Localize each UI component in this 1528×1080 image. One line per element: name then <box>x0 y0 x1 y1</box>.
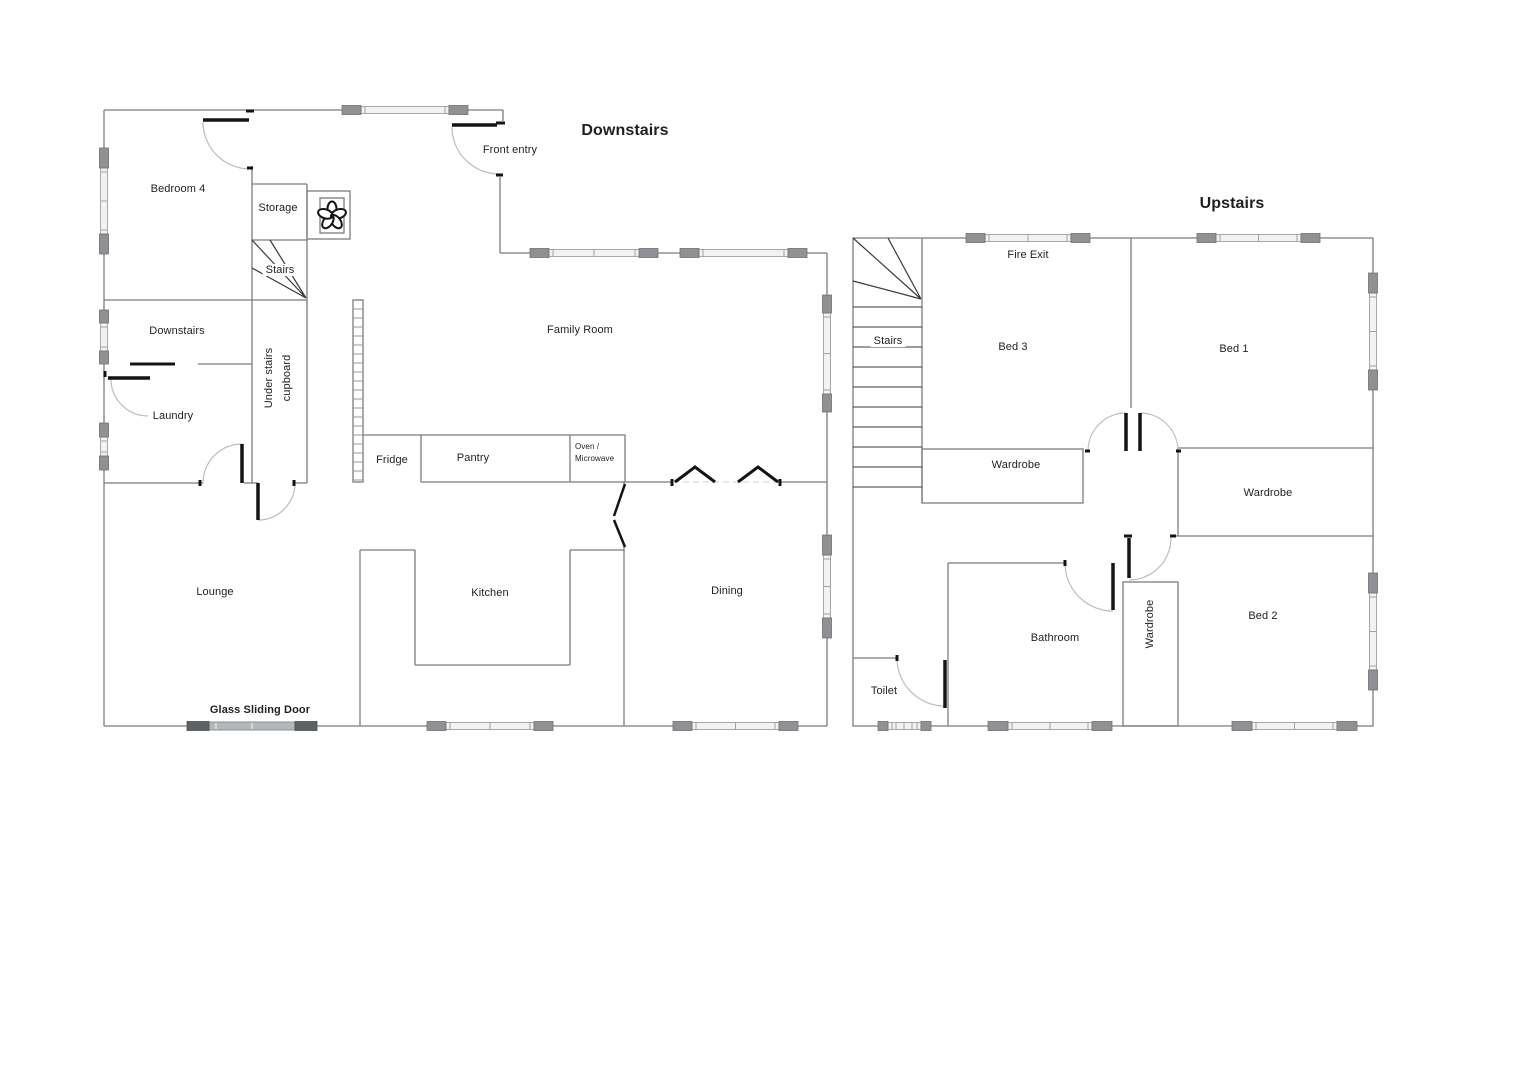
window-icon <box>1197 234 1320 243</box>
sliding-door-icon <box>187 722 317 731</box>
window-icon <box>1232 722 1357 731</box>
room-label-storage: Storage <box>258 202 297 214</box>
upstairs-walls <box>853 238 1373 726</box>
room-label-laundry: Laundry <box>153 410 193 422</box>
door-leaves <box>105 111 1181 708</box>
room-label-bed3: Bed 3 <box>998 341 1027 353</box>
windows-layer <box>100 106 1378 731</box>
window-icon <box>823 535 832 638</box>
bed2-door-arc <box>1129 538 1171 580</box>
upstairs-outer-wall <box>853 238 1373 726</box>
under-stairs-line1: Under stairs <box>263 348 275 409</box>
window-icon <box>988 722 1112 731</box>
floor-plan-page: Downstairs Upstairs Bedroom 4 Storage St… <box>0 0 1528 1080</box>
kitchen-bench <box>360 482 624 726</box>
window-icon <box>966 234 1090 243</box>
room-label-oven-microwave: Oven / Microwave <box>575 441 614 465</box>
label-glass-sliding-door: Glass Sliding Door <box>210 704 310 716</box>
bifold-doors <box>675 467 778 482</box>
label-fire-exit: Fire Exit <box>1007 249 1048 261</box>
ceiling-fan-icon <box>317 202 347 231</box>
downstairs-walls <box>104 110 827 726</box>
room-label-stairs-downstairs: Stairs <box>263 264 298 276</box>
upstairs-stair-treads <box>853 307 922 487</box>
bed1-door-arc <box>1140 413 1178 451</box>
room-label-wardrobe-bed3: Wardrobe <box>992 459 1041 471</box>
bathroom-door-arc <box>1065 563 1113 611</box>
bed3-door-arc <box>1088 413 1126 451</box>
toilet-door-arc <box>897 658 945 706</box>
room-label-under-stairs-cupboard: Under stairs cupboard <box>260 348 296 409</box>
cupboard-door-arc <box>258 483 295 520</box>
window-icon <box>100 423 109 470</box>
downstairs-outer-wall <box>104 110 827 726</box>
room-label-bathroom: Bathroom <box>1031 632 1080 644</box>
room-label-bed1: Bed 1 <box>1219 343 1248 355</box>
room-label-bed2: Bed 2 <box>1248 610 1277 622</box>
room-label-dining: Dining <box>711 585 743 597</box>
wall-ladder-rungs <box>353 309 363 480</box>
under-stairs-line2: cupboard <box>281 355 293 402</box>
upstairs-title: Upstairs <box>1200 195 1265 213</box>
room-label-downstairs-hall: Downstairs <box>149 325 204 337</box>
window-icon <box>342 106 468 115</box>
laundry-door-arc <box>203 444 242 483</box>
upstairs-stair-winders <box>853 238 921 299</box>
room-label-wardrobe-bed1: Wardrobe <box>1244 487 1293 499</box>
room-label-fridge: Fridge <box>376 454 408 466</box>
window-icon <box>878 722 931 731</box>
downstairs-title: Downstairs <box>581 122 668 140</box>
oven-line1: Oven / <box>575 442 599 451</box>
window-icon <box>680 249 807 258</box>
room-label-front-entry: Front entry <box>483 144 537 156</box>
room-label-wardrobe-bed2: Wardrobe <box>1141 600 1159 649</box>
room-label-pantry: Pantry <box>457 452 489 464</box>
room-label-bedroom4: Bedroom 4 <box>151 183 206 195</box>
bedroom4-door-arc <box>203 122 250 169</box>
hall-door-arc <box>111 379 148 416</box>
room-label-lounge: Lounge <box>196 586 233 598</box>
kitchen-opening-break <box>614 484 625 547</box>
room-label-family-room: Family Room <box>547 324 613 336</box>
window-icon <box>100 148 109 254</box>
window-icon <box>427 722 553 731</box>
room-label-kitchen: Kitchen <box>471 587 508 599</box>
room-label-stairs-upstairs: Stairs <box>871 335 906 347</box>
oven-line2: Microwave <box>575 454 614 463</box>
floor-plan-canvas <box>0 0 1528 1080</box>
window-icon <box>530 249 658 258</box>
room-label-toilet: Toilet <box>871 685 897 697</box>
window-icon <box>673 722 798 731</box>
upstairs-inner-walls <box>853 238 1373 726</box>
wardrobe-bed3-box <box>922 449 1083 503</box>
window-icon <box>823 295 832 412</box>
window-icon <box>100 310 109 364</box>
window-icon <box>1369 573 1378 690</box>
window-icon <box>1369 273 1378 390</box>
